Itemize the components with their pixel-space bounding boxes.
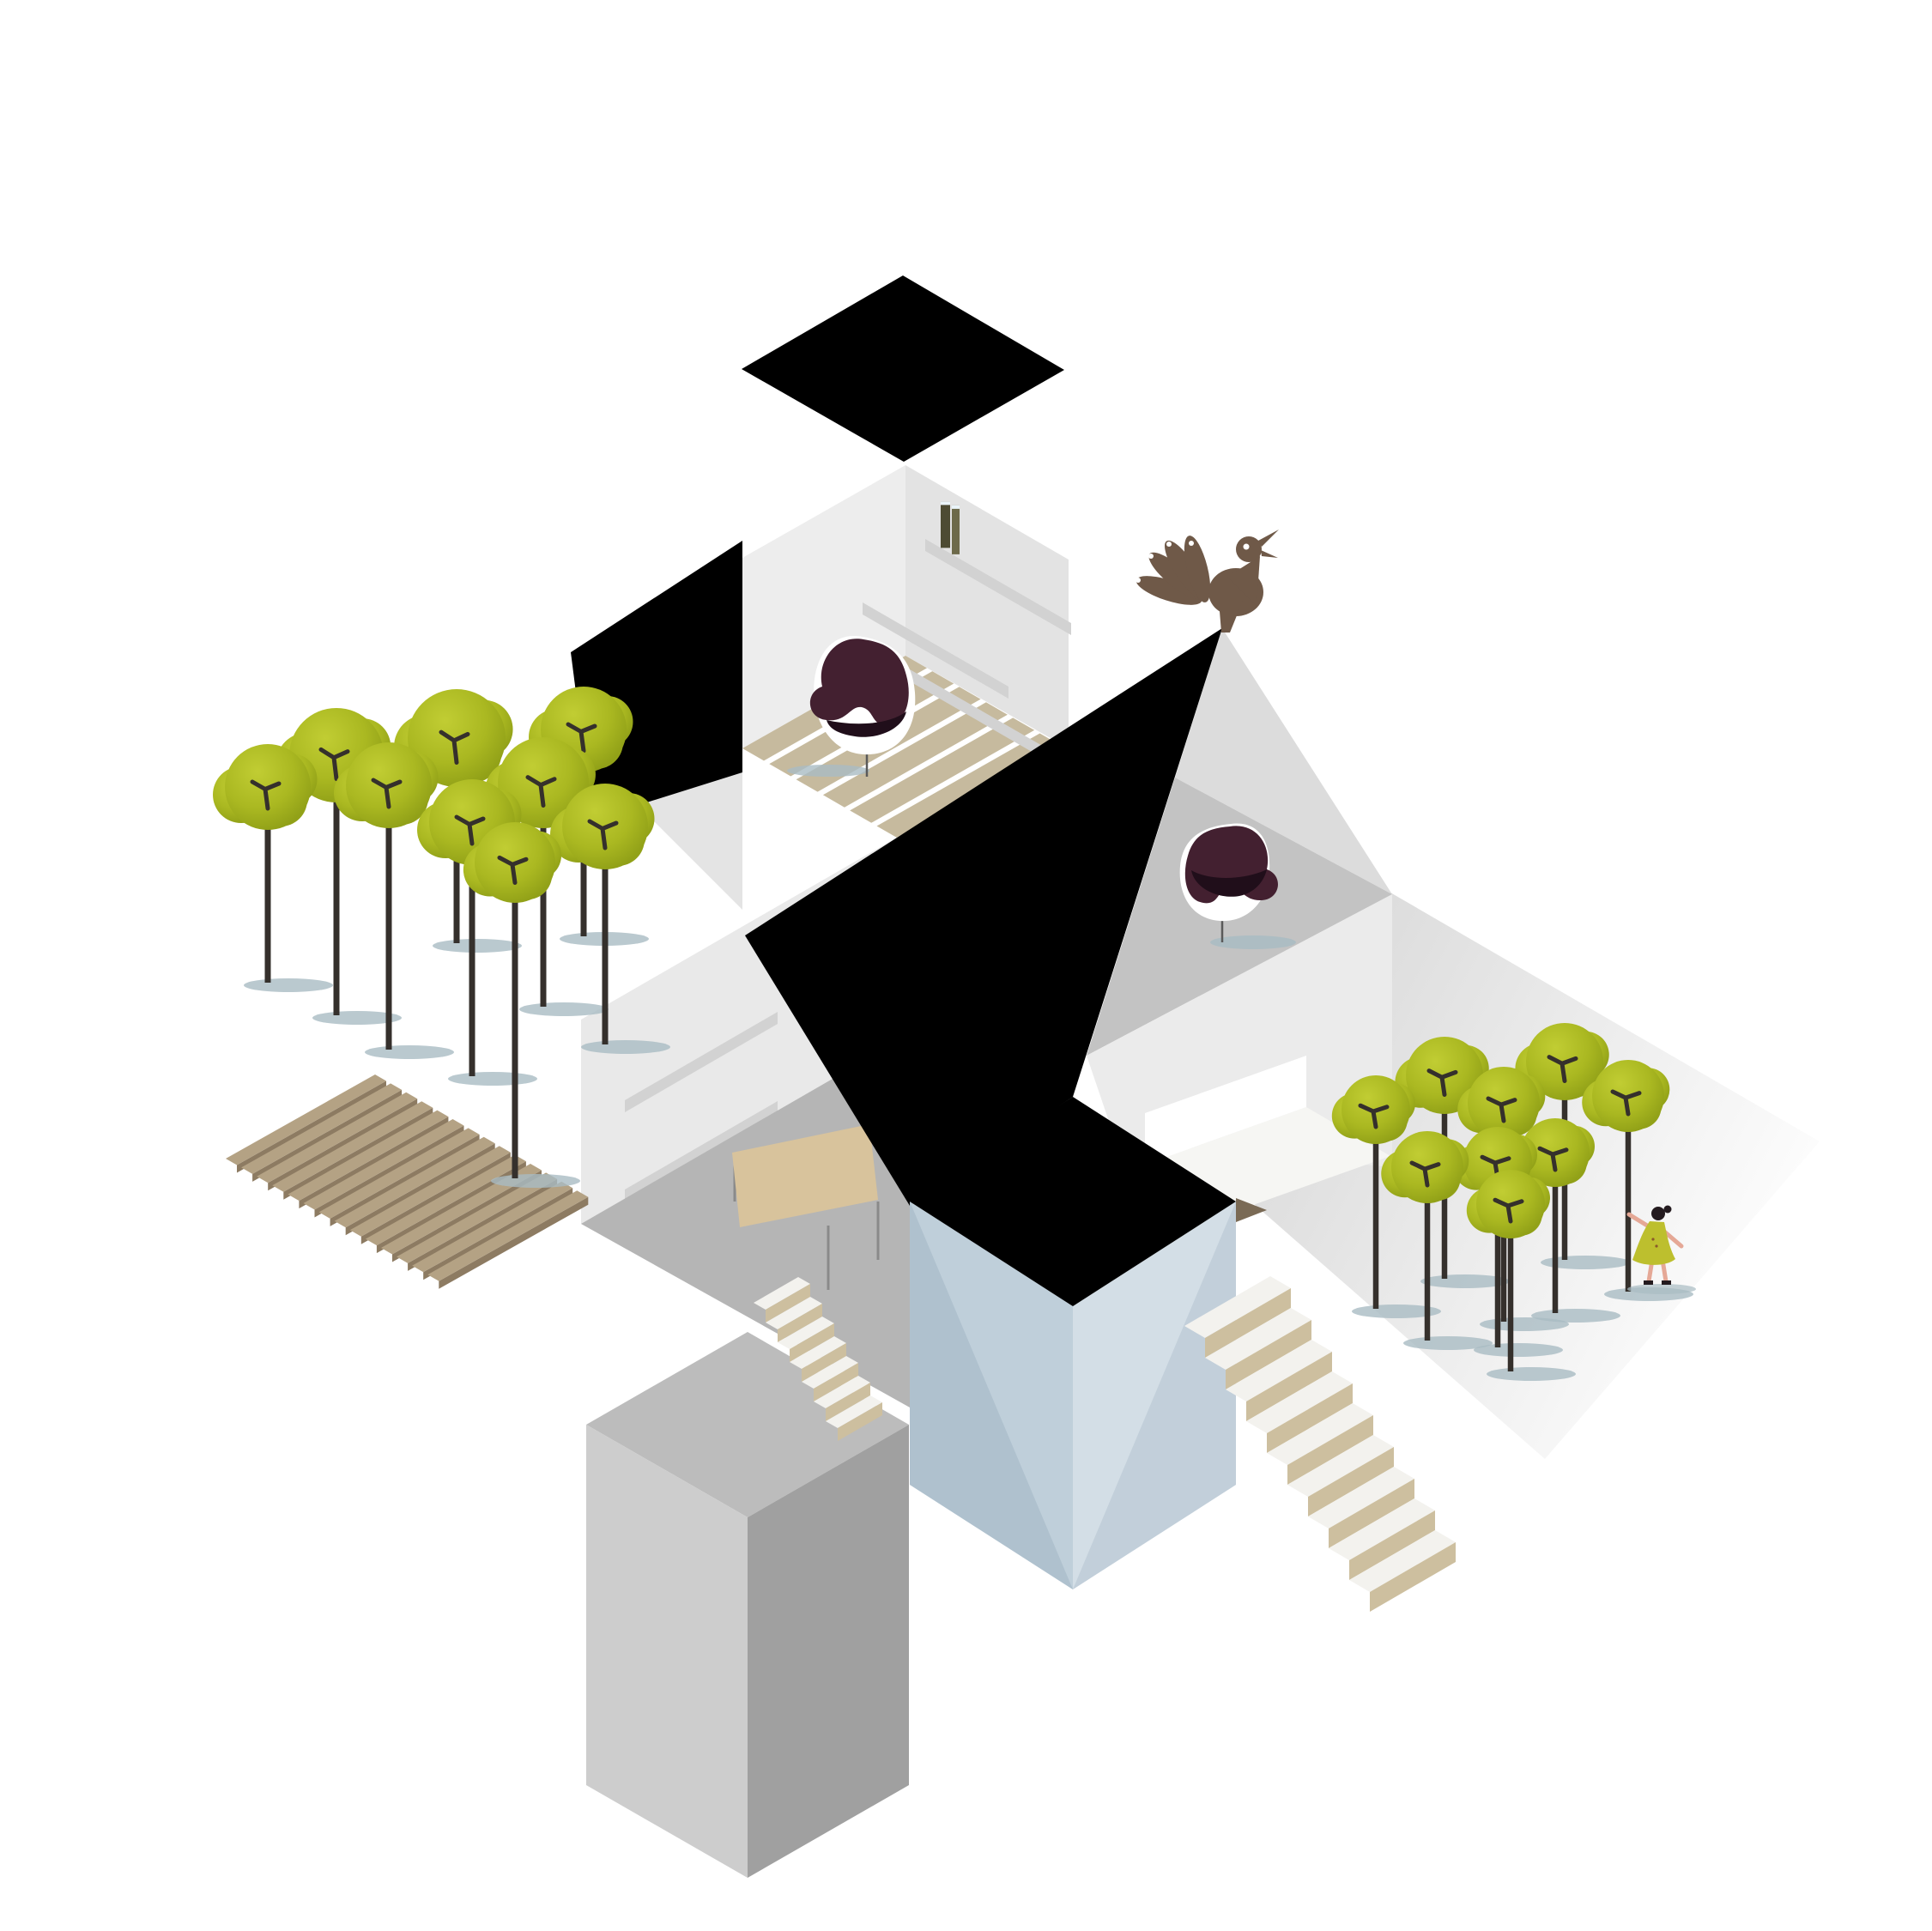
bird-eye — [1244, 544, 1250, 550]
illustration-canvas — [0, 0, 1932, 1931]
book — [952, 505, 960, 554]
left-black-wedge — [571, 541, 742, 820]
tree-shadow — [1403, 1336, 1493, 1350]
egg-chair-top-shadow — [787, 765, 869, 777]
book-pages — [941, 501, 950, 505]
tree-shadow — [491, 1174, 580, 1188]
woman-head — [1651, 1207, 1665, 1220]
tree-shadow — [1487, 1367, 1576, 1381]
bird-sculpture — [1133, 530, 1279, 633]
book — [941, 501, 950, 548]
bird-beak-lower — [1261, 550, 1278, 558]
tree-shadow — [365, 1045, 454, 1059]
tree-shadow — [519, 1002, 609, 1016]
tree-shadow — [433, 939, 522, 953]
tree-shadow — [448, 1072, 537, 1086]
tree — [213, 744, 333, 992]
tree-shadow — [581, 1040, 670, 1054]
roof-diamond — [742, 275, 1064, 462]
woman-shadow — [1627, 1284, 1696, 1294]
tree-shadow — [1531, 1309, 1620, 1323]
bird-beak-upper — [1258, 530, 1279, 547]
tree-shadow — [244, 978, 333, 992]
woman-bun — [1664, 1206, 1672, 1214]
book-pages — [952, 505, 960, 509]
